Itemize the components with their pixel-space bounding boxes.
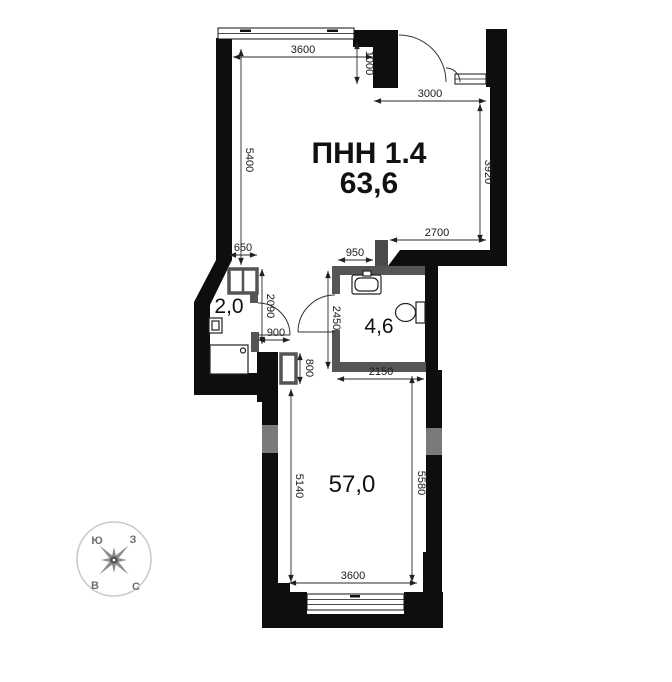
bathroom-area-label: 4,6 bbox=[364, 315, 393, 338]
sink-basin-wc bbox=[212, 321, 219, 330]
duct-shaft bbox=[281, 354, 296, 383]
floor-plan: 3600 1000 3000 5400 3920 2700 650 950 20… bbox=[0, 0, 672, 682]
wc-area-label: 2,0 bbox=[214, 295, 243, 318]
dim-label-lower-window: 3600 bbox=[341, 570, 365, 582]
dim-label-door-width: 900 bbox=[267, 327, 285, 339]
wall-upper-right-block bbox=[486, 29, 507, 87]
window-top-mullion-1 bbox=[240, 30, 251, 33]
dim-label-lower-left-height: 5140 bbox=[293, 474, 305, 498]
toilet-tank bbox=[416, 302, 425, 323]
bathroom-door-arc bbox=[298, 295, 335, 332]
dim-label-upper-left-height: 5400 bbox=[243, 148, 255, 172]
partition-wc-right-lower bbox=[251, 332, 259, 352]
dim-label-bath-wall: 950 bbox=[346, 247, 364, 259]
partition-bath-left-upper bbox=[332, 266, 340, 294]
floor-plan-drawing: 3600 1000 3000 5400 3920 2700 650 950 20… bbox=[0, 0, 672, 682]
partition-bath-top bbox=[332, 266, 425, 275]
window-bottom-mullion bbox=[350, 595, 360, 598]
wall-insert-right bbox=[426, 428, 442, 455]
shower-drain bbox=[241, 348, 246, 353]
dim-label-shaft-width: 650 bbox=[234, 242, 252, 254]
dim-label-bath-height: 2450 bbox=[330, 306, 342, 330]
dim-label-entry-depth: 1000 bbox=[363, 51, 375, 75]
compass-label-north: С bbox=[132, 581, 140, 593]
compass-label-east: В bbox=[91, 580, 99, 592]
dim-label-lower-right-height: 5580 bbox=[415, 471, 427, 495]
compass-label-south: Ю bbox=[91, 535, 102, 547]
entry-door-arc bbox=[399, 35, 446, 82]
compass-rose: Ю З В С bbox=[77, 522, 151, 596]
dim-label-wc-height: 2090 bbox=[264, 294, 276, 318]
main-area-label: 57,0 bbox=[329, 471, 376, 498]
wall-pier-upper bbox=[375, 240, 388, 267]
wall-upper-left bbox=[216, 38, 232, 248]
compass-label-west: З bbox=[130, 534, 137, 546]
wall-wc-bottom bbox=[194, 373, 258, 395]
unit-code-label: ПНН 1.4 bbox=[312, 137, 427, 170]
wall-insert-left bbox=[262, 425, 278, 453]
wall-bottom-left-corner bbox=[262, 583, 290, 595]
dim-label-bath-width: 2150 bbox=[369, 366, 393, 378]
sink-basin-bathroom bbox=[355, 278, 378, 291]
wall-bath-right bbox=[425, 252, 438, 372]
wall-upper-bottom bbox=[388, 250, 507, 266]
dim-label-upper-right-height: 3920 bbox=[482, 160, 494, 184]
window-top-mullion-2 bbox=[327, 30, 338, 33]
unit-area-label: 63,6 bbox=[340, 167, 398, 200]
sink-tap-bathroom bbox=[363, 271, 371, 276]
dim-label-duct-height: 800 bbox=[303, 359, 315, 377]
room-labels: ПНН 1.4 63,6 2,0 4,6 57,0 bbox=[214, 137, 426, 498]
compass-center-dot bbox=[113, 559, 116, 562]
dim-label-top-window: 3600 bbox=[291, 44, 315, 56]
dim-label-entry-width: 3000 bbox=[418, 88, 442, 100]
dim-label-upper-bottom-width: 2700 bbox=[425, 227, 449, 239]
windows bbox=[218, 28, 486, 614]
toilet-bowl bbox=[396, 304, 416, 322]
